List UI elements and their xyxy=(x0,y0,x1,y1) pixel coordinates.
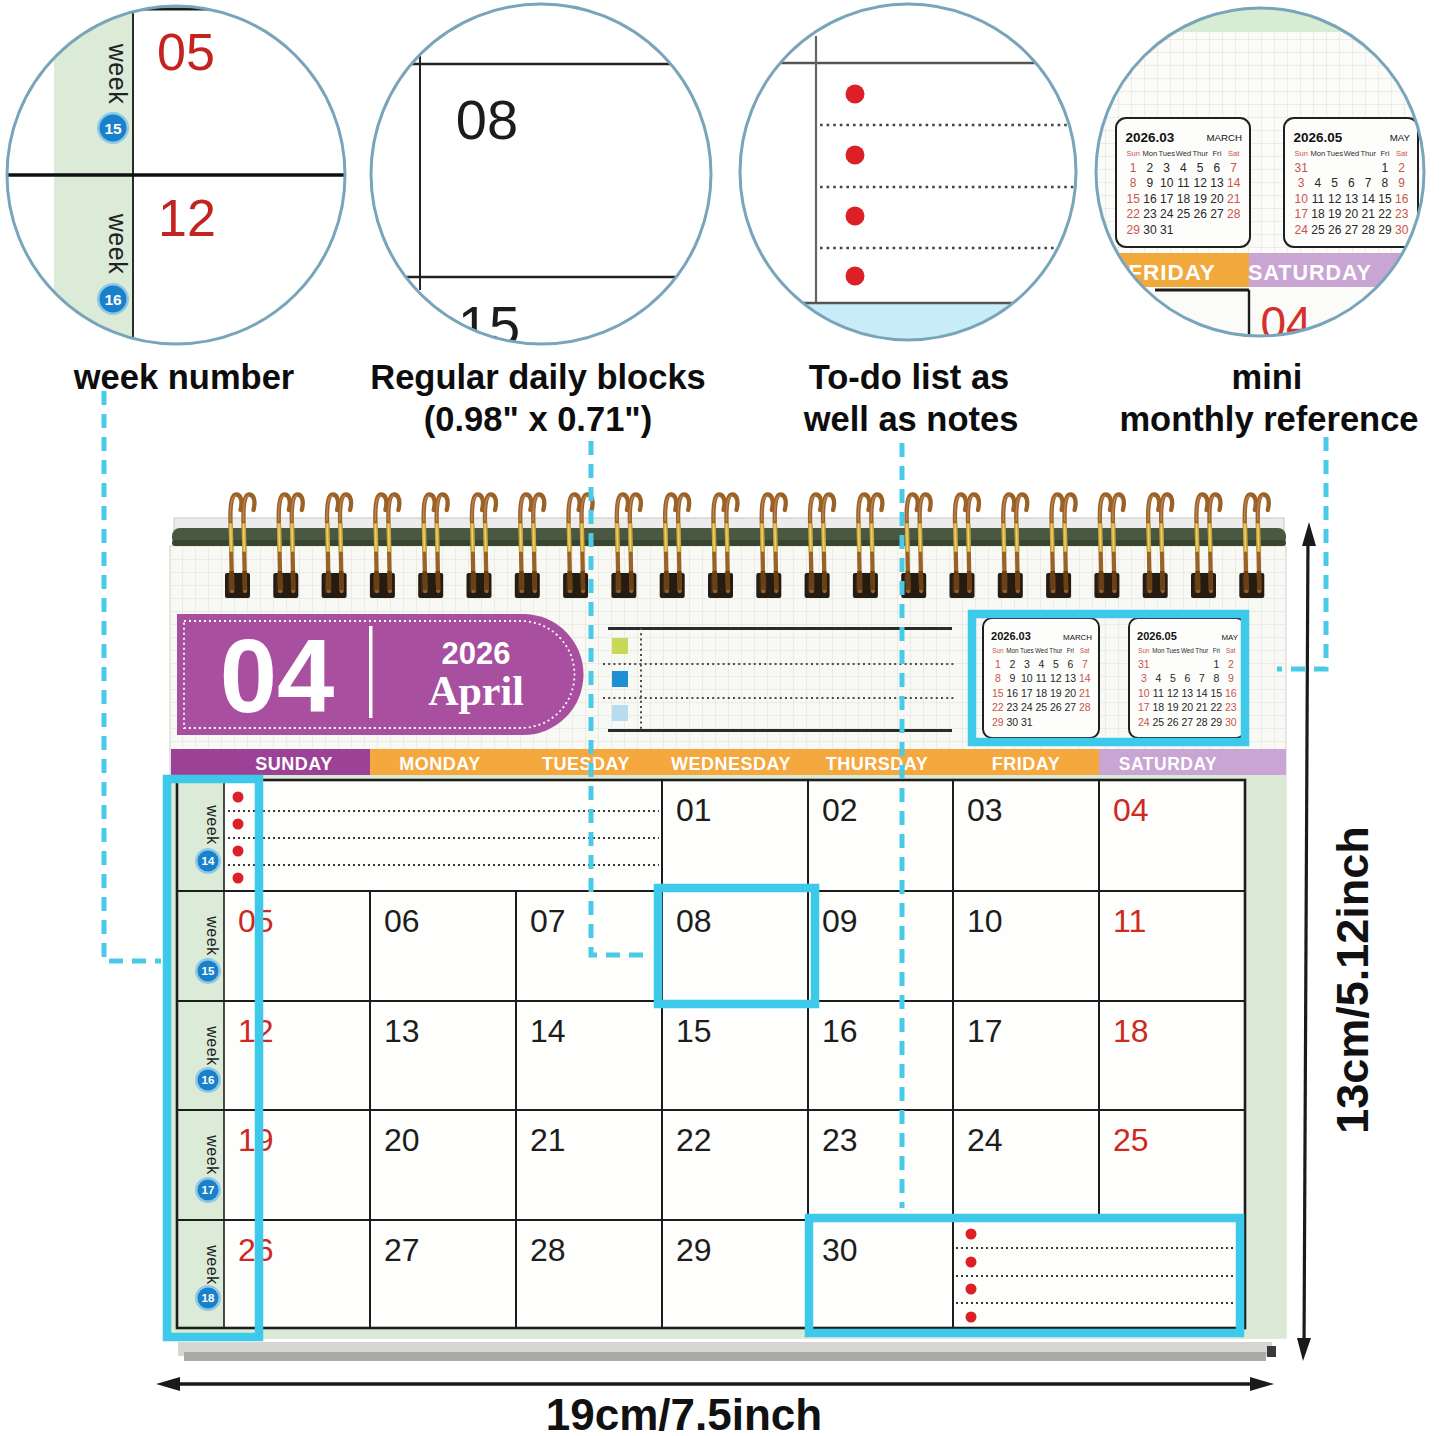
svg-text:13: 13 xyxy=(384,1013,420,1049)
svg-text:7: 7 xyxy=(1199,672,1205,684)
svg-text:04: 04 xyxy=(220,619,335,734)
svg-text:29: 29 xyxy=(676,1232,712,1268)
svg-text:9: 9 xyxy=(1228,672,1234,684)
svg-text:7: 7 xyxy=(1082,658,1088,670)
svg-text:10: 10 xyxy=(967,903,1003,939)
svg-text:2026.03: 2026.03 xyxy=(1125,130,1174,145)
svg-text:SATURDAY: SATURDAY xyxy=(1248,261,1372,285)
svg-text:MARCH: MARCH xyxy=(1063,633,1092,642)
svg-text:10: 10 xyxy=(1295,192,1309,206)
svg-text:23: 23 xyxy=(822,1122,858,1158)
svg-text:18: 18 xyxy=(1177,192,1191,206)
svg-text:8: 8 xyxy=(995,672,1001,684)
svg-text:5: 5 xyxy=(1197,161,1204,175)
svg-text:14: 14 xyxy=(1227,176,1241,190)
svg-text:29: 29 xyxy=(1210,716,1222,728)
svg-text:27: 27 xyxy=(1210,207,1224,221)
svg-text:week: week xyxy=(204,915,221,956)
svg-text:24: 24 xyxy=(1160,207,1174,221)
svg-text:11: 11 xyxy=(1177,176,1190,190)
svg-text:THURSDAY: THURSDAY xyxy=(826,754,928,774)
svg-text:6: 6 xyxy=(1348,176,1355,190)
svg-text:11: 11 xyxy=(1036,672,1047,684)
svg-text:14: 14 xyxy=(1362,192,1376,206)
svg-text:Fri: Fri xyxy=(1067,647,1074,654)
svg-text:11: 11 xyxy=(1312,192,1325,206)
svg-text:28: 28 xyxy=(530,1232,566,1268)
svg-text:4: 4 xyxy=(1038,658,1044,670)
svg-text:1: 1 xyxy=(1130,161,1137,175)
svg-text:30: 30 xyxy=(822,1232,858,1268)
svg-text:2026.05: 2026.05 xyxy=(1293,130,1342,145)
svg-text:Sat: Sat xyxy=(1228,149,1240,158)
svg-text:21: 21 xyxy=(1196,701,1208,713)
svg-text:week: week xyxy=(204,1134,221,1175)
svg-text:13cm/5.12inch: 13cm/5.12inch xyxy=(1327,826,1378,1134)
svg-text:21: 21 xyxy=(1227,192,1241,206)
svg-text:15: 15 xyxy=(104,120,122,137)
svg-text:28: 28 xyxy=(1196,716,1208,728)
svg-text:7: 7 xyxy=(1230,161,1237,175)
svg-text:21: 21 xyxy=(530,1122,566,1158)
svg-text:18: 18 xyxy=(1311,207,1325,221)
svg-text:29: 29 xyxy=(1127,223,1141,237)
svg-text:22: 22 xyxy=(1127,207,1141,221)
svg-text:4: 4 xyxy=(1315,176,1322,190)
svg-text:week: week xyxy=(104,43,132,104)
svg-text:16: 16 xyxy=(1143,192,1157,206)
svg-text:FRIDAY: FRIDAY xyxy=(992,754,1060,774)
svg-text:21: 21 xyxy=(1079,687,1091,699)
svg-text:Mon: Mon xyxy=(1006,647,1019,654)
svg-text:10: 10 xyxy=(1138,687,1150,699)
svg-text:16: 16 xyxy=(1225,687,1237,699)
svg-text:12: 12 xyxy=(1328,192,1342,206)
svg-text:3: 3 xyxy=(1163,161,1170,175)
svg-text:16: 16 xyxy=(822,1013,858,1049)
svg-text:Fri: Fri xyxy=(1212,149,1221,158)
svg-text:Mon: Mon xyxy=(1152,647,1165,654)
svg-text:14: 14 xyxy=(202,855,215,867)
svg-text:25: 25 xyxy=(1152,716,1164,728)
svg-text:31: 31 xyxy=(1160,223,1174,237)
svg-text:5: 5 xyxy=(1170,672,1176,684)
svg-text:2: 2 xyxy=(1398,161,1405,175)
svg-text:25: 25 xyxy=(1113,1122,1149,1158)
svg-text:13: 13 xyxy=(1210,176,1224,190)
svg-text:5: 5 xyxy=(1053,658,1059,670)
svg-text:04: 04 xyxy=(1113,792,1149,828)
svg-text:mini: mini xyxy=(1232,358,1303,396)
svg-text:20: 20 xyxy=(384,1122,420,1158)
svg-text:4: 4 xyxy=(1180,161,1187,175)
svg-text:Tues: Tues xyxy=(1166,647,1180,654)
svg-text:2026: 2026 xyxy=(442,636,511,671)
svg-text:Sat: Sat xyxy=(1226,647,1236,654)
svg-text:23: 23 xyxy=(1395,207,1409,221)
svg-text:SATURDAY: SATURDAY xyxy=(1119,754,1217,774)
svg-text:16: 16 xyxy=(1395,192,1409,206)
svg-text:15: 15 xyxy=(1378,192,1392,206)
svg-text:Tues: Tues xyxy=(1326,149,1343,158)
svg-text:Regular daily blocks: Regular daily blocks xyxy=(370,358,706,396)
svg-text:11: 11 xyxy=(1113,903,1146,939)
svg-text:21: 21 xyxy=(1362,207,1376,221)
svg-text:7: 7 xyxy=(1365,176,1372,190)
svg-text:27: 27 xyxy=(1064,701,1076,713)
svg-text:31: 31 xyxy=(1295,161,1309,175)
svg-text:17: 17 xyxy=(1160,192,1174,206)
svg-text:week: week xyxy=(204,1244,221,1285)
svg-text:17: 17 xyxy=(202,1184,215,1196)
svg-text:15: 15 xyxy=(676,1013,712,1049)
svg-text:03: 03 xyxy=(967,792,1003,828)
svg-text:Wed: Wed xyxy=(1176,149,1191,158)
svg-text:02: 02 xyxy=(822,792,858,828)
svg-text:27: 27 xyxy=(1345,223,1359,237)
svg-text:25: 25 xyxy=(1311,223,1325,237)
svg-text:06: 06 xyxy=(384,903,420,939)
svg-text:08: 08 xyxy=(676,903,712,939)
svg-text:30: 30 xyxy=(1395,223,1409,237)
svg-text:22: 22 xyxy=(1210,701,1222,713)
svg-text:24: 24 xyxy=(1295,223,1309,237)
svg-text:23: 23 xyxy=(1006,701,1018,713)
svg-text:2: 2 xyxy=(1147,161,1154,175)
svg-text:31: 31 xyxy=(1138,658,1150,670)
svg-text:Sun: Sun xyxy=(1126,149,1140,158)
svg-text:19: 19 xyxy=(1167,701,1179,713)
svg-text:9: 9 xyxy=(1147,176,1154,190)
svg-text:24: 24 xyxy=(1138,716,1150,728)
svg-text:18: 18 xyxy=(1113,1013,1149,1049)
svg-text:25: 25 xyxy=(1177,207,1191,221)
svg-text:2: 2 xyxy=(1228,658,1234,670)
svg-text:24: 24 xyxy=(967,1122,1003,1158)
svg-text:30: 30 xyxy=(1006,716,1018,728)
svg-text:14: 14 xyxy=(530,1013,566,1049)
svg-text:Sun: Sun xyxy=(1138,647,1150,654)
svg-text:Tues: Tues xyxy=(1020,647,1034,654)
svg-text:28: 28 xyxy=(1227,207,1241,221)
svg-text:19: 19 xyxy=(1194,192,1208,206)
svg-text:2026.03: 2026.03 xyxy=(991,630,1031,642)
svg-text:12: 12 xyxy=(1194,176,1208,190)
svg-text:Fri: Fri xyxy=(1380,149,1389,158)
svg-text:week: week xyxy=(104,213,132,274)
svg-text:30: 30 xyxy=(1225,716,1237,728)
svg-text:11: 11 xyxy=(1153,687,1164,699)
svg-text:20: 20 xyxy=(1210,192,1224,206)
svg-text:1: 1 xyxy=(995,658,1001,670)
svg-text:Thur: Thur xyxy=(1360,149,1376,158)
svg-text:well as notes: well as notes xyxy=(803,400,1019,438)
svg-text:22: 22 xyxy=(992,701,1004,713)
svg-text:22: 22 xyxy=(1378,207,1392,221)
svg-text:28: 28 xyxy=(1079,701,1091,713)
svg-text:MARCH: MARCH xyxy=(1206,132,1242,143)
svg-text:6: 6 xyxy=(1214,161,1221,175)
svg-text:15: 15 xyxy=(992,687,1004,699)
svg-text:MAY: MAY xyxy=(1221,633,1238,642)
svg-text:22: 22 xyxy=(676,1122,712,1158)
svg-text:Sat: Sat xyxy=(1080,647,1090,654)
svg-text:28: 28 xyxy=(1362,223,1376,237)
svg-text:18: 18 xyxy=(202,1292,215,1304)
svg-text:19: 19 xyxy=(1050,687,1062,699)
svg-text:13: 13 xyxy=(1181,687,1193,699)
svg-text:Wed: Wed xyxy=(1344,149,1359,158)
svg-text:week: week xyxy=(204,804,221,845)
svg-text:27: 27 xyxy=(1181,716,1193,728)
svg-text:25: 25 xyxy=(1035,701,1047,713)
svg-text:12: 12 xyxy=(1167,687,1179,699)
svg-text:Mon: Mon xyxy=(1311,149,1326,158)
svg-text:23: 23 xyxy=(1225,701,1237,713)
svg-text:17: 17 xyxy=(1138,701,1150,713)
svg-text:Sat: Sat xyxy=(1396,149,1408,158)
svg-text:12: 12 xyxy=(1050,672,1062,684)
svg-text:3: 3 xyxy=(1141,672,1147,684)
svg-text:9: 9 xyxy=(1009,672,1015,684)
svg-text:17: 17 xyxy=(1295,207,1309,221)
svg-text:19cm/7.5inch: 19cm/7.5inch xyxy=(546,1390,822,1436)
svg-text:08: 08 xyxy=(456,88,518,151)
svg-text:26: 26 xyxy=(1167,716,1179,728)
svg-text:9: 9 xyxy=(1398,176,1405,190)
svg-text:SUNDAY: SUNDAY xyxy=(255,754,332,774)
svg-text:TUESDAY: TUESDAY xyxy=(542,754,630,774)
svg-text:10: 10 xyxy=(1021,672,1033,684)
svg-text:3: 3 xyxy=(1024,658,1030,670)
svg-text:4: 4 xyxy=(1155,672,1161,684)
svg-text:Thur: Thur xyxy=(1049,647,1062,654)
svg-text:18: 18 xyxy=(1152,701,1164,713)
svg-text:WEDNESDAY: WEDNESDAY xyxy=(671,754,791,774)
svg-text:MONDAY: MONDAY xyxy=(399,754,480,774)
svg-text:31: 31 xyxy=(1021,716,1033,728)
svg-text:15: 15 xyxy=(202,965,215,977)
svg-text:MAY: MAY xyxy=(1390,132,1411,143)
svg-text:8: 8 xyxy=(1382,176,1389,190)
svg-text:Thur: Thur xyxy=(1195,647,1208,654)
svg-text:15: 15 xyxy=(1127,192,1141,206)
svg-text:Mon: Mon xyxy=(1143,149,1158,158)
svg-text:01: 01 xyxy=(676,792,712,828)
svg-text:12: 12 xyxy=(158,189,216,247)
svg-text:14: 14 xyxy=(1079,672,1091,684)
svg-text:6: 6 xyxy=(1184,672,1190,684)
svg-text:(0.98" x 0.71"): (0.98" x 0.71") xyxy=(424,400,652,438)
svg-text:Thur: Thur xyxy=(1192,149,1208,158)
svg-text:16: 16 xyxy=(1006,687,1018,699)
svg-text:13: 13 xyxy=(1064,672,1076,684)
svg-text:26: 26 xyxy=(1050,701,1062,713)
svg-text:8: 8 xyxy=(1130,176,1137,190)
svg-text:18: 18 xyxy=(1035,687,1047,699)
svg-text:17: 17 xyxy=(1021,687,1033,699)
svg-text:26: 26 xyxy=(1328,223,1342,237)
svg-text:5: 5 xyxy=(1331,176,1338,190)
svg-text:17: 17 xyxy=(967,1013,1003,1049)
svg-text:Fri: Fri xyxy=(1213,647,1220,654)
svg-text:16: 16 xyxy=(202,1074,215,1086)
svg-text:24: 24 xyxy=(1021,701,1033,713)
svg-text:13: 13 xyxy=(1345,192,1359,206)
svg-text:2: 2 xyxy=(1009,658,1015,670)
svg-text:Wed: Wed xyxy=(1035,647,1048,654)
svg-text:14: 14 xyxy=(1196,687,1208,699)
svg-text:FRIDAY: FRIDAY xyxy=(1128,260,1216,285)
svg-text:05: 05 xyxy=(157,23,215,81)
svg-text:Wed: Wed xyxy=(1181,647,1194,654)
svg-text:6: 6 xyxy=(1067,658,1073,670)
svg-text:3: 3 xyxy=(1298,176,1305,190)
svg-text:week: week xyxy=(204,1025,221,1066)
svg-text:2026.05: 2026.05 xyxy=(1137,630,1177,642)
svg-text:To-do list as: To-do list as xyxy=(809,358,1010,396)
svg-text:16: 16 xyxy=(104,291,122,308)
svg-text:1: 1 xyxy=(1382,161,1389,175)
svg-text:20: 20 xyxy=(1064,687,1076,699)
svg-text:monthly reference: monthly reference xyxy=(1119,400,1418,438)
svg-text:23: 23 xyxy=(1143,207,1157,221)
svg-text:19: 19 xyxy=(1328,207,1342,221)
svg-text:27: 27 xyxy=(384,1232,420,1268)
svg-text:26: 26 xyxy=(1194,207,1208,221)
svg-text:8: 8 xyxy=(1213,672,1219,684)
svg-text:20: 20 xyxy=(1181,701,1193,713)
svg-text:April: April xyxy=(428,668,524,714)
svg-text:20: 20 xyxy=(1345,207,1359,221)
svg-text:30: 30 xyxy=(1143,223,1157,237)
svg-text:1: 1 xyxy=(1213,658,1219,670)
svg-text:week number: week number xyxy=(73,358,295,396)
svg-text:Sun: Sun xyxy=(1294,149,1308,158)
svg-text:10: 10 xyxy=(1160,176,1174,190)
svg-text:Sun: Sun xyxy=(992,647,1004,654)
svg-text:15: 15 xyxy=(1210,687,1222,699)
svg-text:29: 29 xyxy=(1378,223,1392,237)
svg-text:07: 07 xyxy=(530,903,566,939)
svg-text:29: 29 xyxy=(992,716,1004,728)
svg-text:Tues: Tues xyxy=(1158,149,1175,158)
svg-text:09: 09 xyxy=(822,903,858,939)
